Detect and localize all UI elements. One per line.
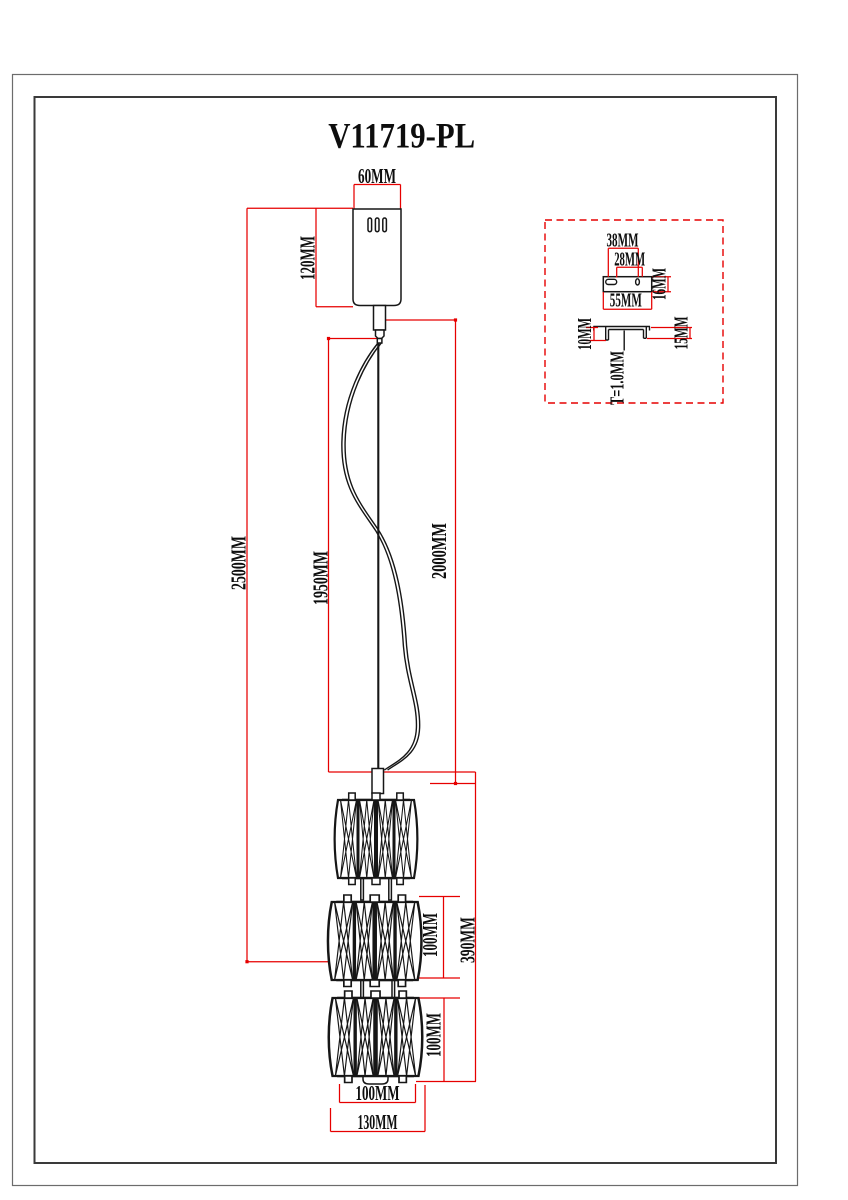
power-cord (342, 343, 420, 770)
shade-hub (372, 769, 384, 794)
technical-drawing: V11719-PL (0, 0, 848, 1200)
detail-plate-depth: 16MM (650, 268, 671, 300)
dim-shade3-height: 100MM (422, 1013, 446, 1057)
detail-hole-spacing: 38MM (607, 231, 639, 252)
dim-shade-stack-height: 390MM (456, 917, 480, 963)
dim-canopy-height: 120MM (296, 236, 320, 280)
dim-shade2-height: 100MM (418, 913, 442, 957)
canopy-stem (374, 306, 386, 331)
dim-shade-diameter: 100MM (356, 1081, 400, 1105)
shade-2 (328, 895, 422, 987)
dim-wire-drop: 1950MM (309, 551, 333, 605)
dim-shade-max-diameter: 130MM (358, 1110, 398, 1134)
bracket-side-view (593, 327, 650, 351)
detail-slot-span: 28MM (614, 250, 645, 271)
mounting-detail-box: 38MM 28MM 16MM 55MM 10MM 15MM T=1.0MM (545, 220, 723, 405)
page-title: V11719-PL (328, 116, 475, 156)
cord-grip-nub (377, 339, 382, 344)
dim-overall-drop: 2500MM (227, 536, 251, 590)
detail-plate-thickness: T=1.0MM (608, 351, 629, 405)
detail-plate-width: 55MM (610, 291, 642, 312)
drawing-page: V11719-PL (0, 0, 848, 1200)
detail-right-flange: 15MM (672, 317, 693, 350)
cord-grip (376, 330, 385, 339)
dim-canopy-width: 60MM (358, 164, 396, 188)
detail-left-flange: 10MM (575, 318, 596, 350)
dim-cord-drop: 2000MM (427, 523, 451, 579)
canopy-vent-slots (368, 218, 386, 232)
shade-1 (335, 793, 418, 885)
canopy (353, 209, 401, 343)
shade-3 (329, 991, 423, 1083)
